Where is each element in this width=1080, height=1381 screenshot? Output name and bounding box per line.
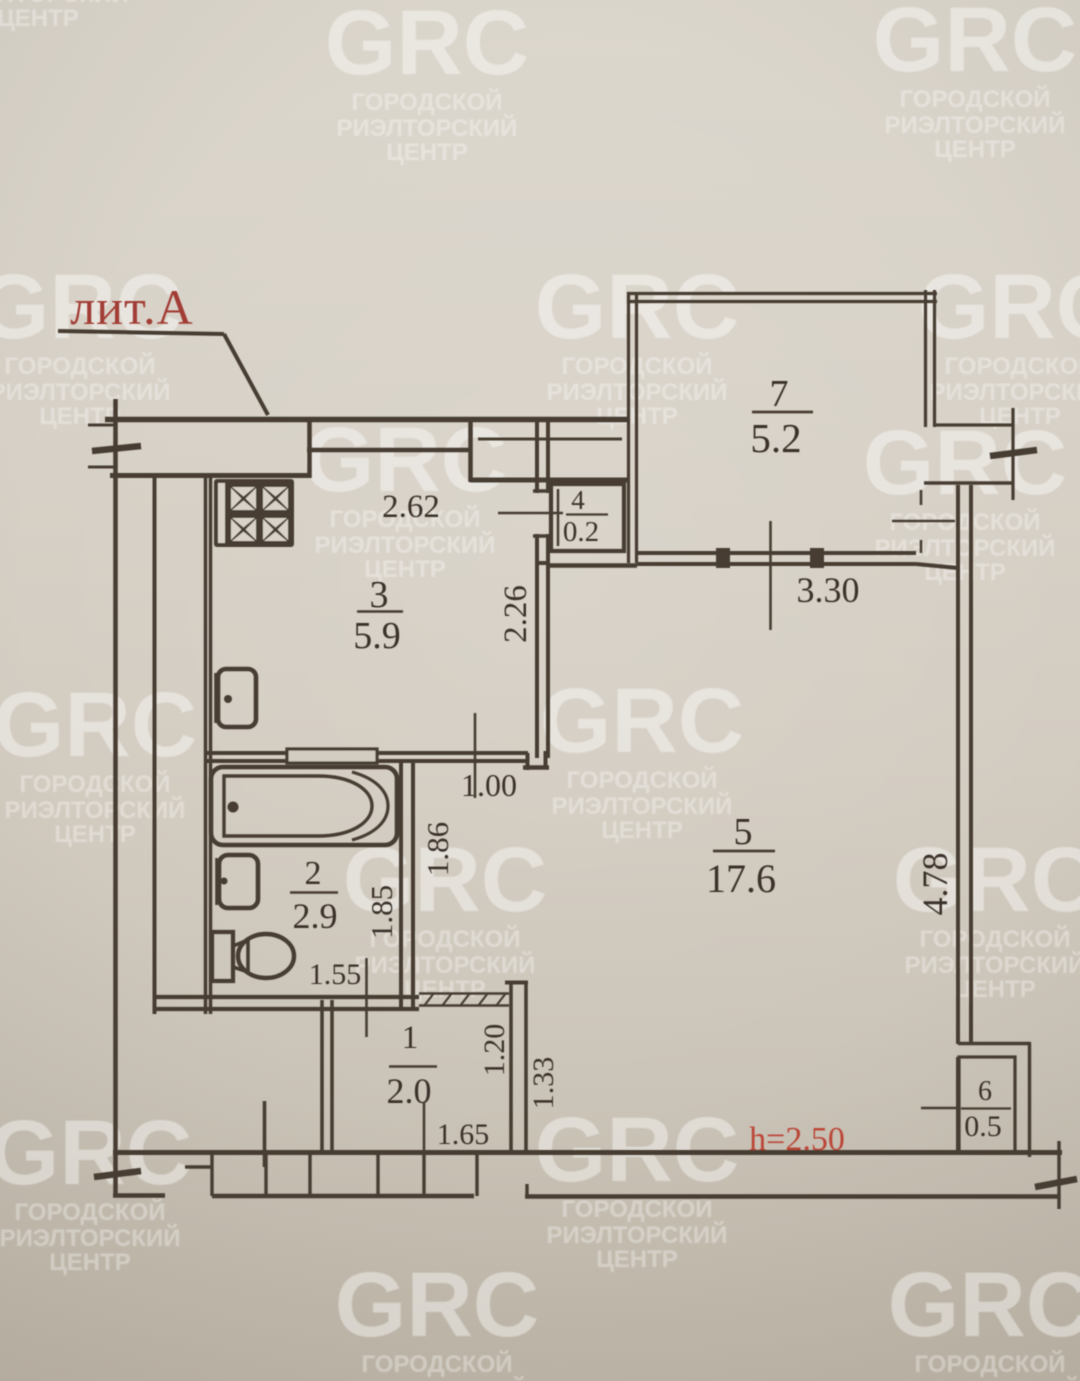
- svg-text:1.65: 1.65: [437, 1118, 490, 1151]
- svg-text:1.00: 1.00: [461, 767, 517, 803]
- svg-text:РИЭЛТОРСКИЙ: РИЭЛТОРСКИЙ: [930, 378, 1080, 406]
- svg-text:ГОРОДСКОЙ: ГОРОДСКОЙ: [915, 1350, 1066, 1378]
- svg-text:РИЭЛТОРСКИЙ: РИЭЛТОРСКИЙ: [355, 951, 536, 979]
- svg-text:РИЭЛТОРСКИЙ: РИЭЛТОРСКИЙ: [347, 1376, 528, 1381]
- svg-text:ЦЕНТР: ЦЕНТР: [0, 5, 79, 32]
- svg-text:2.62: 2.62: [382, 489, 440, 525]
- svg-text:РИЭЛТОРСКИЙ: РИЭЛТОРСКИЙ: [337, 114, 518, 142]
- svg-text:РИЭЛТОРСКИЙ: РИЭЛТОРСКИЙ: [905, 951, 1080, 979]
- svg-text:ЦЕНТР: ЦЕНТР: [954, 976, 1036, 1003]
- svg-text:0.2: 0.2: [563, 516, 599, 548]
- svg-text:РИЭЛТОРСКИЙ: РИЭЛТОРСКИЙ: [5, 796, 186, 824]
- svg-text:GRC: GRC: [540, 670, 744, 772]
- svg-text:ЦЕНТР: ЦЕНТР: [596, 1246, 678, 1273]
- svg-text:ГОРОДСКОЙ: ГОРОДСКОЙ: [920, 925, 1071, 953]
- svg-text:GRC: GRC: [918, 256, 1080, 358]
- svg-text:ЦЕНТР: ЦЕНТР: [601, 817, 683, 844]
- svg-text:ЦЕНТР: ЦЕНТР: [54, 821, 136, 848]
- svg-text:ГОРОДСКОЙ: ГОРОДСКОЙ: [567, 766, 718, 794]
- svg-text:ГОРОДСКОЙ: ГОРОДСКОЙ: [5, 352, 156, 380]
- svg-text:РИЭЛТОРСКИЙ: РИЭЛТОРСКИЙ: [0, 1224, 180, 1252]
- svg-text:17.6: 17.6: [706, 856, 776, 901]
- svg-text:6: 6: [978, 1076, 992, 1107]
- svg-text:GRC: GRC: [863, 412, 1067, 514]
- svg-text:GRC: GRC: [888, 1254, 1080, 1356]
- svg-text:4: 4: [571, 485, 585, 515]
- svg-text:РИЭЛТОРСКИЙ: РИЭЛТОРСКИЙ: [547, 1221, 728, 1249]
- svg-text:2.9: 2.9: [293, 896, 338, 936]
- svg-text:РИЭЛТОРСКИЙ: РИЭЛТОРСКИЙ: [552, 792, 733, 820]
- svg-text:ЦЕНТР: ЦЕНТР: [924, 559, 1006, 586]
- svg-text:3.30: 3.30: [797, 570, 860, 610]
- svg-text:0.5: 0.5: [964, 1110, 1002, 1143]
- svg-text:5.2: 5.2: [750, 415, 801, 461]
- svg-text:5: 5: [734, 811, 753, 853]
- svg-text:РИЭЛТОРСКИЙ: РИЭЛТОРСКИЙ: [885, 111, 1066, 139]
- svg-text:лит.А: лит.А: [70, 279, 193, 335]
- svg-text:ГОРОДСКОЙ: ГОРОДСКОЙ: [900, 85, 1051, 113]
- svg-text:1.86: 1.86: [420, 822, 455, 876]
- svg-text:ГОРОДСКОЙ: ГОРОДСКОЙ: [20, 770, 171, 798]
- svg-text:ГОРОДСКОЙ: ГОРОДСКОЙ: [562, 1195, 713, 1223]
- svg-text:7: 7: [770, 373, 789, 415]
- svg-text:1.33: 1.33: [527, 1057, 560, 1110]
- svg-text:РИЭЛТОРСКИЙ: РИЭЛТОРСКИЙ: [315, 531, 496, 559]
- svg-text:1.20: 1.20: [478, 1024, 511, 1077]
- svg-text:3: 3: [370, 574, 389, 616]
- svg-text:5.9: 5.9: [353, 615, 401, 657]
- svg-text:4.78: 4.78: [915, 853, 955, 916]
- svg-text:ГОРОДСКОЙ: ГОРОДСКОЙ: [945, 352, 1080, 380]
- svg-text:ЦЕНТР: ЦЕНТР: [49, 1249, 131, 1276]
- svg-text:1: 1: [402, 1020, 419, 1056]
- svg-text:ГОРОДСКОЙ: ГОРОДСКОЙ: [352, 88, 503, 116]
- svg-text:РИЭЛТОРСКИЙ: РИЭЛТОРСКИЙ: [875, 534, 1056, 562]
- svg-text:РИЭЛТОРСКИЙ: РИЭЛТОРСКИЙ: [0, 378, 170, 406]
- svg-text:GRC: GRC: [0, 674, 197, 776]
- svg-text:РИЭЛТОРСКИЙ: РИЭЛТОРСКИЙ: [900, 1376, 1080, 1381]
- svg-text:ГОРОДСКОЙ: ГОРОДСКОЙ: [362, 1350, 513, 1378]
- svg-text:ГОРОДСКОЙ: ГОРОДСКОЙ: [15, 1198, 166, 1226]
- svg-text:1.55: 1.55: [309, 958, 362, 991]
- svg-text:GRC: GRC: [325, 0, 529, 94]
- svg-text:2: 2: [305, 855, 322, 892]
- svg-text:GRC: GRC: [335, 1254, 539, 1356]
- svg-text:GRC: GRC: [873, 0, 1077, 91]
- svg-text:ЦЕНТР: ЦЕНТР: [386, 139, 468, 166]
- svg-text:2.26: 2.26: [498, 585, 534, 643]
- svg-text:1.85: 1.85: [364, 885, 399, 939]
- svg-text:ЦЕНТР: ЦЕНТР: [934, 136, 1016, 163]
